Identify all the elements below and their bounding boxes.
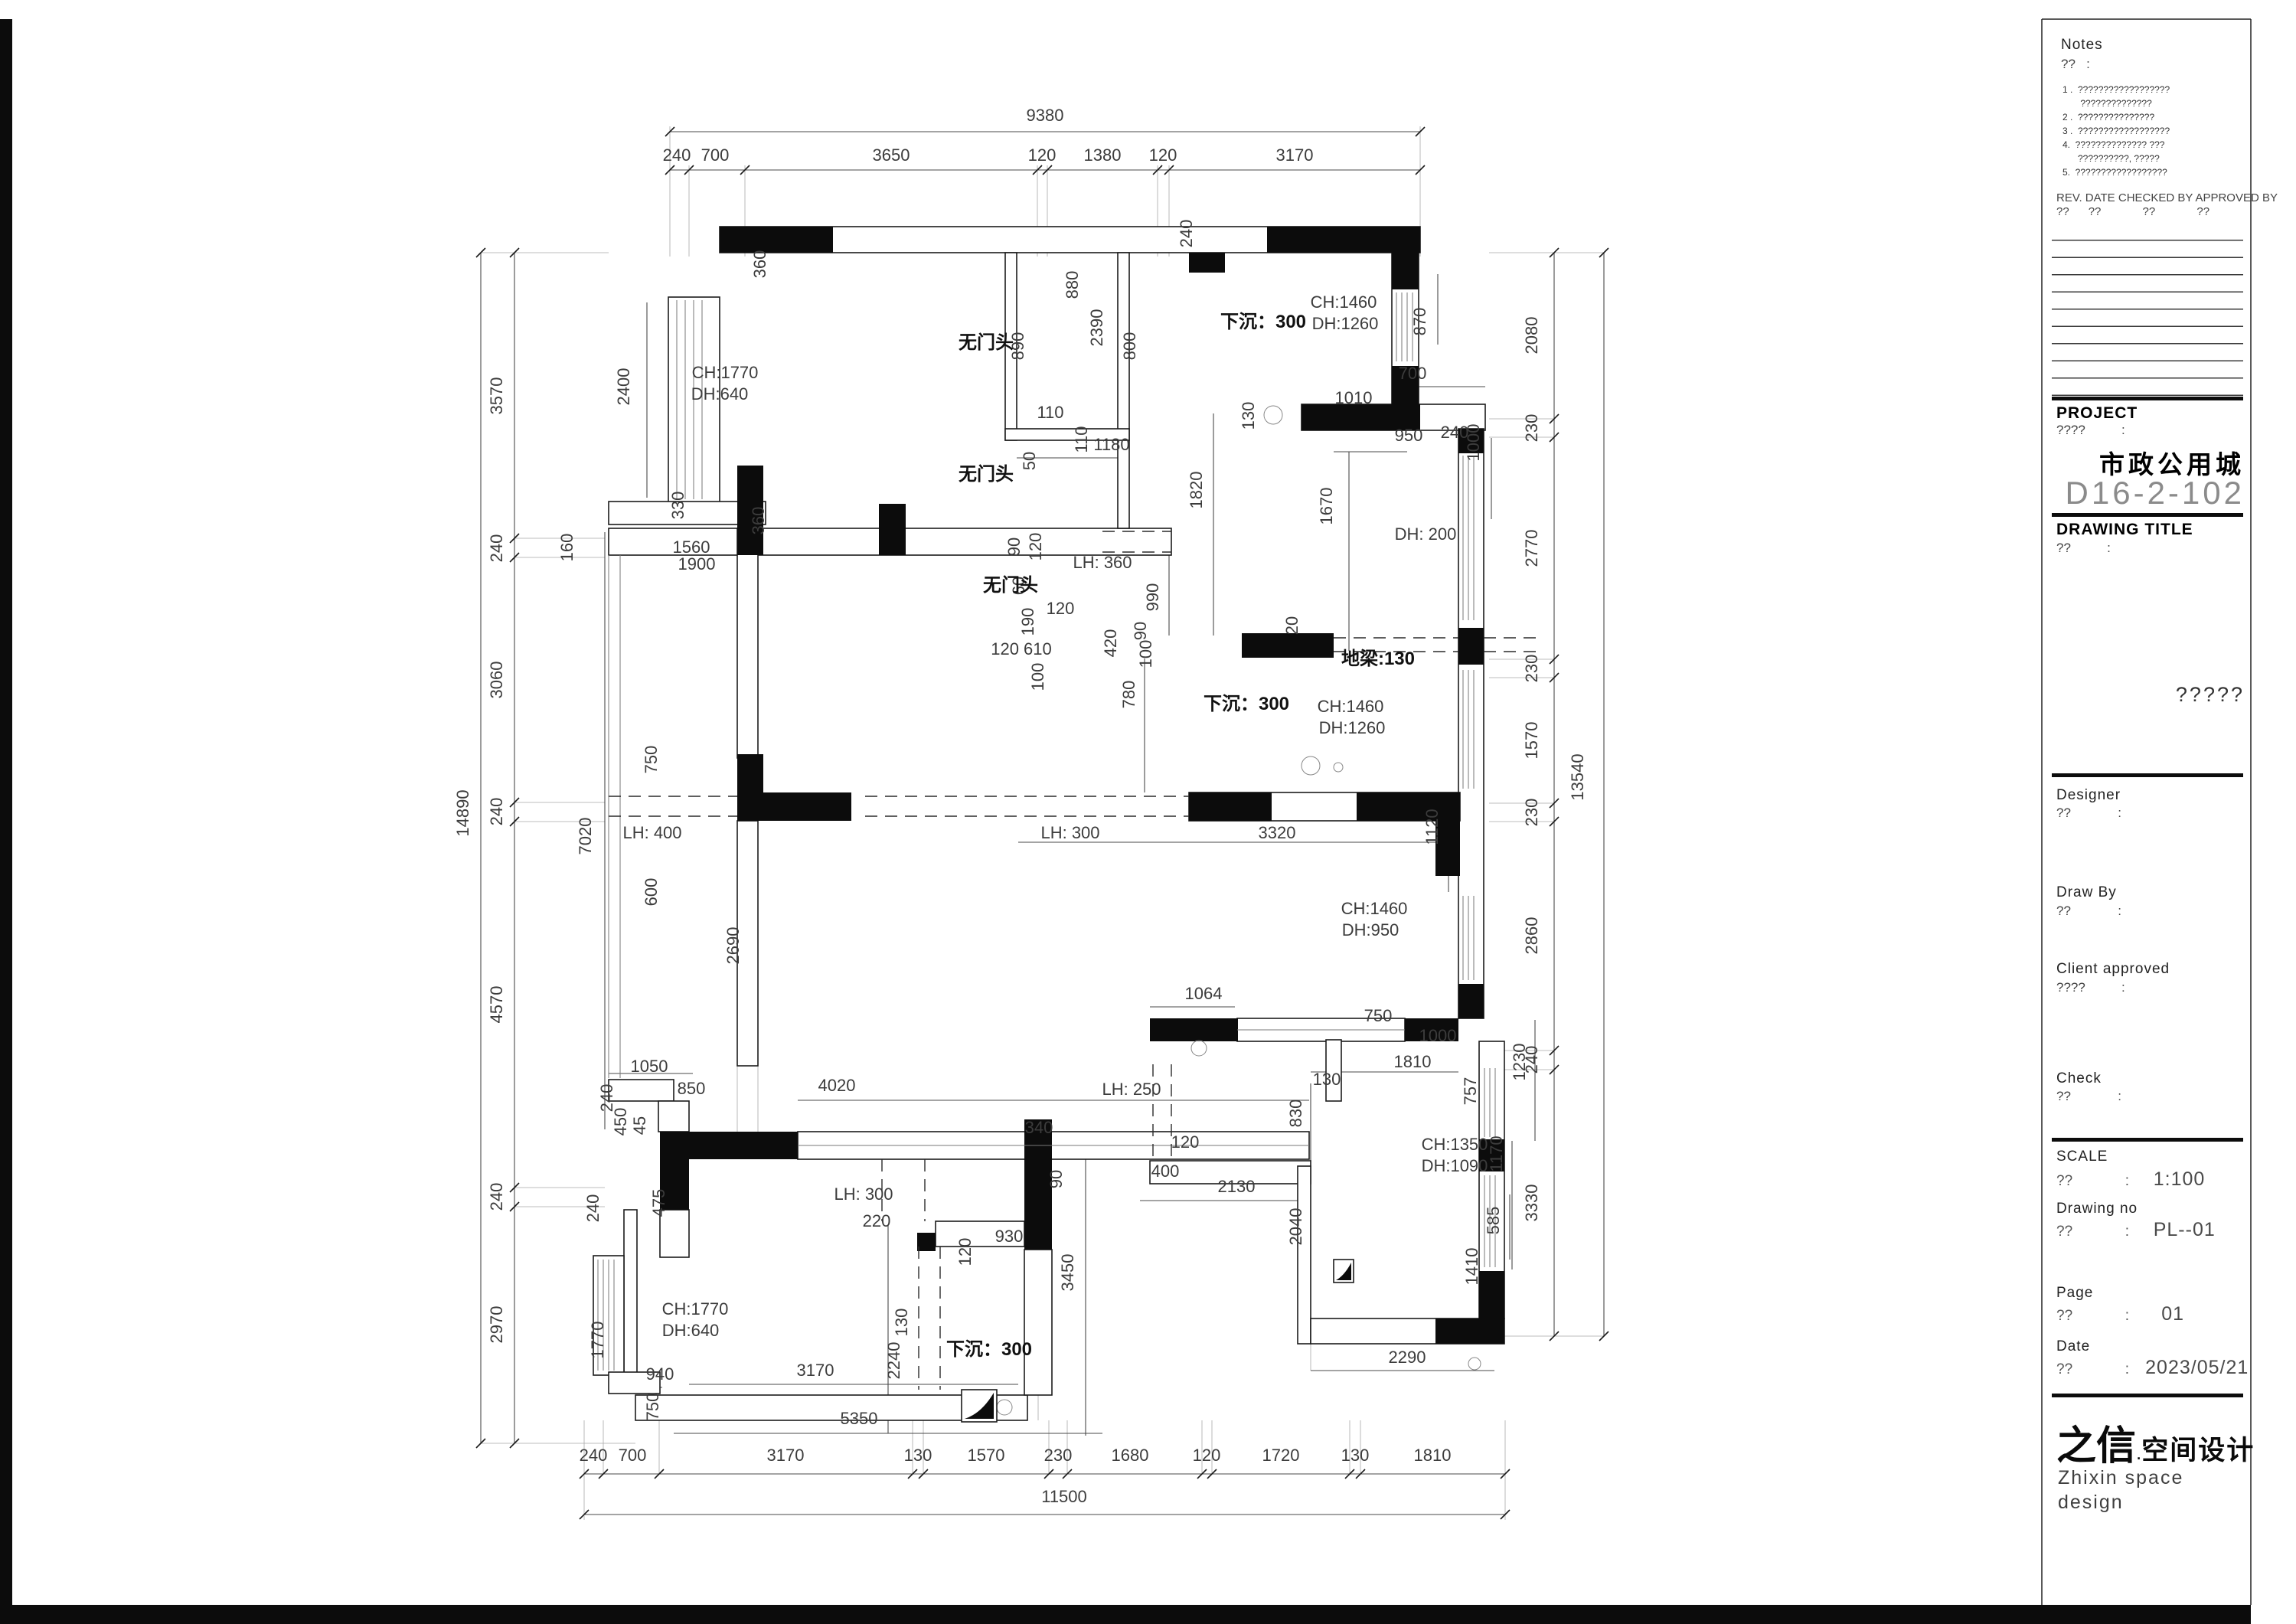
drawby-label: Draw By: [2056, 884, 2117, 901]
dim-label: 3650: [873, 145, 910, 165]
dim-label: 600: [642, 878, 661, 907]
dim-label: 100: [1028, 663, 1047, 691]
client-approved-label: Client approved: [2056, 961, 2170, 978]
scale-row: ?? : 1:100: [2056, 1168, 2205, 1191]
dim-label: 130: [1239, 402, 1258, 430]
notes-item: 5. ??????????????????: [2062, 165, 2170, 179]
dim-label: 1410: [1462, 1248, 1481, 1286]
dim-label: 240: [580, 1446, 608, 1465]
dim-label: 1680: [1112, 1446, 1149, 1465]
dim-label: 700: [619, 1446, 647, 1465]
dim-label: 90: [1004, 538, 1024, 556]
dim-label: 1570: [1522, 722, 1541, 760]
divider: [2052, 773, 2243, 777]
dim-label: 20: [1282, 616, 1302, 635]
dim-label: 1120: [1422, 809, 1442, 845]
room-label: 下沉：300: [1204, 694, 1289, 714]
dim-label: 700: [701, 145, 730, 165]
page-key: ?? :: [2056, 1308, 2161, 1324]
notes-item: ??????????, ?????: [2062, 152, 2170, 165]
dim-label: 120: [1149, 145, 1177, 165]
dim-label: 240: [1177, 220, 1196, 248]
dim-label: 1810: [1414, 1446, 1452, 1465]
dim-label: 940: [646, 1364, 674, 1384]
dim-label: 1010: [1335, 388, 1373, 407]
dim-label: 3060: [487, 662, 506, 699]
dim-label: 90: [1047, 1170, 1066, 1188]
divider: [2052, 397, 2243, 400]
dim-label: 330: [668, 492, 687, 520]
dim-label: CH:1460: [1311, 292, 1377, 312]
dim-label: LH: 300: [1040, 823, 1099, 842]
dim-label: 340: [1025, 1118, 1053, 1137]
notes-subtitle: ?? :: [2061, 57, 2090, 72]
dim-label: DH:640: [662, 1321, 720, 1340]
drawing-no-label: Drawing no: [2056, 1201, 2138, 1217]
dim-label: 1000: [1419, 1026, 1457, 1045]
dim-label: 1170: [1487, 1135, 1506, 1171]
drawing-no-key: ?? :: [2056, 1224, 2154, 1240]
dim-label: 2400: [614, 368, 633, 406]
dim-label: 750: [1364, 1006, 1393, 1025]
dim-label: 120 610: [991, 639, 1052, 658]
dim-label: 240: [663, 145, 691, 165]
drawing-sheet: 9380240700365012013801203170148903570240…: [0, 0, 2296, 1624]
dim-label: 3170: [1276, 145, 1314, 165]
scale-value: 1:100: [2154, 1168, 2206, 1190]
dim-label: 1050: [631, 1057, 668, 1076]
dim-label: DH:950: [1342, 920, 1399, 939]
dim-label: 3320: [1259, 823, 1296, 842]
dim-label: DH:640: [691, 384, 749, 404]
logo-en-line2: design: [2058, 1492, 2124, 1514]
dim-label: 1900: [678, 554, 716, 573]
dim-label: 1670: [1317, 488, 1336, 525]
dim-label: DH:1090: [1422, 1156, 1488, 1175]
drawing-title-label: DRAWING TITLE: [2056, 521, 2193, 539]
check-label: Check: [2056, 1070, 2102, 1087]
page-value: 01: [2161, 1303, 2184, 1325]
project-sub: ???? :: [2056, 423, 2125, 438]
project-code: D16-2-102: [2046, 475, 2245, 511]
dim-label: 1180: [1093, 435, 1129, 454]
dim-label: 2770: [1522, 530, 1541, 567]
room-label: 下沉：300: [946, 1339, 1032, 1360]
floor-plan: 9380240700365012013801203170148903570240…: [0, 0, 2296, 1624]
company-logo: 之信.空间设计: [2056, 1413, 2255, 1471]
dim-label: 3170: [767, 1446, 805, 1465]
drawing-no-value: PL--01: [2154, 1219, 2216, 1240]
dim-label: CH:1770: [662, 1299, 729, 1318]
dim-label: 120: [1193, 1446, 1221, 1465]
dim-label: 11500: [1041, 1487, 1087, 1506]
dim-label: 130: [1341, 1446, 1370, 1465]
rev-header: REV. DATE CHECKED BY APPROVED BY: [2056, 191, 2278, 204]
date-label: Date: [2056, 1338, 2090, 1355]
room-label: 下沉：300: [1220, 312, 1306, 332]
dim-label: 1380: [1084, 145, 1122, 165]
dim-label: 360: [749, 507, 768, 535]
notes-item: 2 . ???????????????: [2062, 110, 2170, 124]
notes-item: 4. ?????????????? ???: [2062, 138, 2170, 152]
dim-label: 2860: [1522, 917, 1541, 955]
dim-label: LH: 400: [622, 823, 681, 842]
dim-label: 14890: [453, 789, 472, 836]
project-label: PROJECT: [2056, 404, 2138, 423]
dim-label: 110: [1037, 403, 1063, 422]
dim-label: 400: [1151, 1162, 1180, 1181]
notes-title: Notes: [2061, 37, 2103, 54]
dim-label: 120: [1047, 599, 1075, 618]
page-row: ?? : 01: [2056, 1303, 2184, 1325]
dim-label: 2040: [1286, 1208, 1305, 1246]
designer-label: Designer: [2056, 787, 2121, 804]
dim-label: 240: [487, 798, 506, 826]
dim-label: 1570: [968, 1446, 1005, 1465]
dim-label: 120: [1026, 533, 1045, 561]
rev-subheader: ?? ?? ?? ??: [2056, 205, 2209, 218]
dim-label: 850: [678, 1079, 706, 1098]
dim-label: 160: [557, 534, 576, 562]
dim-label: DH:1260: [1312, 314, 1379, 333]
drawing-title-sub: ?? :: [2056, 541, 2111, 556]
dim-label: 3450: [1058, 1254, 1077, 1292]
dim-label: 700: [1399, 364, 1427, 383]
dim-label: DH: 200: [1395, 524, 1457, 544]
date-value: 2023/05/21: [2145, 1357, 2249, 1378]
dim-label: 1230: [1510, 1044, 1529, 1081]
client-approved-sub: ???? :: [2056, 980, 2125, 995]
dim-label: 240: [487, 1183, 506, 1211]
dim-label: 2240: [884, 1342, 903, 1380]
dim-label: 4570: [487, 986, 506, 1024]
dim-label: 240: [487, 534, 506, 563]
dim-label: 9380: [1027, 106, 1064, 125]
dim-label: 450: [611, 1108, 630, 1136]
dim-label: CH:1460: [1318, 697, 1384, 716]
dim-label: 475: [649, 1189, 668, 1217]
dim-label: 420: [1101, 629, 1120, 658]
dim-label: 800: [1120, 332, 1139, 361]
dim-label: LH: 250: [1102, 1080, 1161, 1099]
dim-label: 750: [643, 1393, 662, 1421]
dim-label: 2390: [1087, 309, 1106, 347]
dim-label: 120: [955, 1238, 975, 1266]
page-label: Page: [2056, 1285, 2093, 1302]
dim-label: 1000: [1464, 424, 1483, 462]
dim-label: 100: [1136, 640, 1155, 668]
dim-label: 870: [1410, 308, 1429, 336]
scale-key: ?? :: [2056, 1173, 2154, 1189]
drawing-no-row: ?? : PL--01: [2056, 1219, 2216, 1241]
notes-list: 1 . ?????????????????? ??????????????2 .…: [2062, 83, 2170, 179]
dim-label: 750: [642, 746, 661, 774]
dim-label: 360: [750, 250, 769, 279]
dim-label: 880: [1063, 271, 1082, 299]
dim-label: LH: 360: [1073, 553, 1132, 572]
room-label: 无门头: [983, 574, 1038, 596]
dim-label: 3170: [797, 1361, 834, 1380]
dim-label: 2130: [1218, 1177, 1256, 1196]
walls-solid: [660, 227, 1504, 1344]
dim-label: 120: [1171, 1132, 1200, 1152]
dim-label: 1064: [1185, 984, 1223, 1003]
room-label: 无门头: [959, 463, 1014, 485]
dim-label: 230: [1522, 655, 1541, 683]
revision-table: [2052, 224, 2243, 397]
dim-label: 190: [1018, 608, 1037, 636]
dim-label: 1720: [1262, 1446, 1300, 1465]
dim-label: 120: [1028, 145, 1057, 165]
dim-label: 930: [995, 1227, 1024, 1246]
dim-label: 990: [1143, 583, 1162, 612]
notes-item: 3 . ??????????????????: [2062, 124, 2170, 138]
divider: [2052, 513, 2243, 517]
dim-label: 230: [1044, 1446, 1073, 1465]
date-key: ?? :: [2056, 1361, 2145, 1377]
title-block: Notes ?? : 1 . ?????????????????? ??????…: [2046, 0, 2251, 1624]
dim-label: 757: [1461, 1077, 1480, 1106]
dim-label: DH:1260: [1319, 718, 1386, 737]
dim-label: 1810: [1394, 1052, 1432, 1071]
drawing-name-placeholder: ?????: [2046, 683, 2245, 707]
logo-cn-rest: 空间设计: [2141, 1436, 2255, 1466]
dim-label: 50: [1020, 452, 1039, 470]
date-row: ?? : 2023/05/21: [2056, 1357, 2249, 1379]
dim-label: CH:1350: [1422, 1135, 1488, 1154]
divider: [2052, 1138, 2243, 1142]
notes-item: ??????????????: [2062, 96, 2170, 110]
dim-label: 130: [904, 1446, 932, 1465]
logo-cn-main: 之信: [2056, 1424, 2136, 1469]
divider: [2052, 1394, 2243, 1397]
dim-label: 3330: [1522, 1185, 1541, 1222]
notes-item: 1 . ??????????????????: [2062, 83, 2170, 96]
dim-label: 780: [1119, 681, 1138, 709]
dim-label: 4020: [818, 1076, 856, 1095]
dim-label: 230: [1522, 799, 1541, 827]
dim-label: 5350: [841, 1409, 878, 1428]
dim-label: 1770: [588, 1322, 607, 1359]
dim-label: 2290: [1389, 1348, 1426, 1367]
logo-en-line1: Zhixin space: [2058, 1467, 2183, 1489]
drawby-sub: ?? :: [2056, 903, 2121, 919]
dim-label: 3570: [487, 377, 506, 415]
check-sub: ?? :: [2056, 1089, 2121, 1104]
dim-label: 2690: [723, 927, 743, 965]
dim-label: 110: [1072, 426, 1091, 453]
designer-sub: ?? :: [2056, 805, 2121, 821]
dim-label: 830: [1286, 1100, 1305, 1128]
room-label: 无门头: [959, 332, 1014, 353]
dim-label: 130: [892, 1309, 911, 1337]
dim-label: 220: [863, 1211, 891, 1230]
dim-label: CH:1770: [692, 363, 759, 382]
dim-label: 585: [1484, 1207, 1503, 1235]
dim-label: 950: [1395, 426, 1423, 445]
dim-label: CH:1460: [1341, 899, 1408, 918]
dim-label: 2080: [1522, 317, 1541, 355]
dim-label: 2970: [487, 1306, 506, 1344]
dim-label: 7020: [576, 818, 595, 855]
dim-label: 90: [1131, 622, 1150, 640]
dim-label: 130: [1313, 1070, 1341, 1089]
room-label: 地梁:130: [1341, 648, 1415, 669]
dim-label: LH: 300: [834, 1185, 893, 1204]
dim-label: 13540: [1568, 753, 1587, 800]
dim-label: 45: [630, 1116, 649, 1135]
dim-label: 230: [1522, 414, 1541, 443]
dim-label: 240: [583, 1194, 603, 1223]
dim-label: 1820: [1187, 472, 1206, 509]
scale-label: SCALE: [2056, 1149, 2108, 1165]
